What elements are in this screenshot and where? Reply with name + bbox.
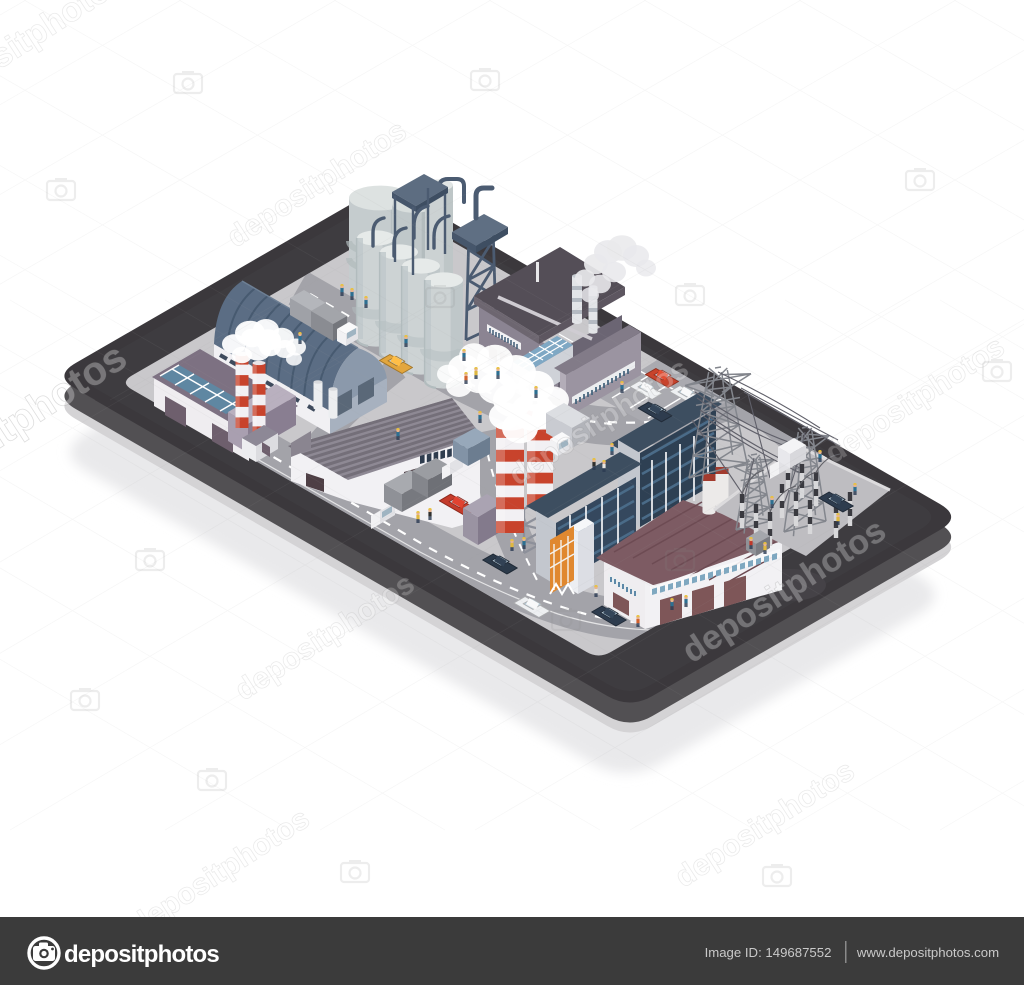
- svg-text:depositphotos: depositphotos: [64, 941, 219, 968]
- svg-text:www.depositphotos.com: www.depositphotos.com: [856, 945, 999, 960]
- svg-text:Image ID: 149687552: Image ID: 149687552: [705, 945, 832, 960]
